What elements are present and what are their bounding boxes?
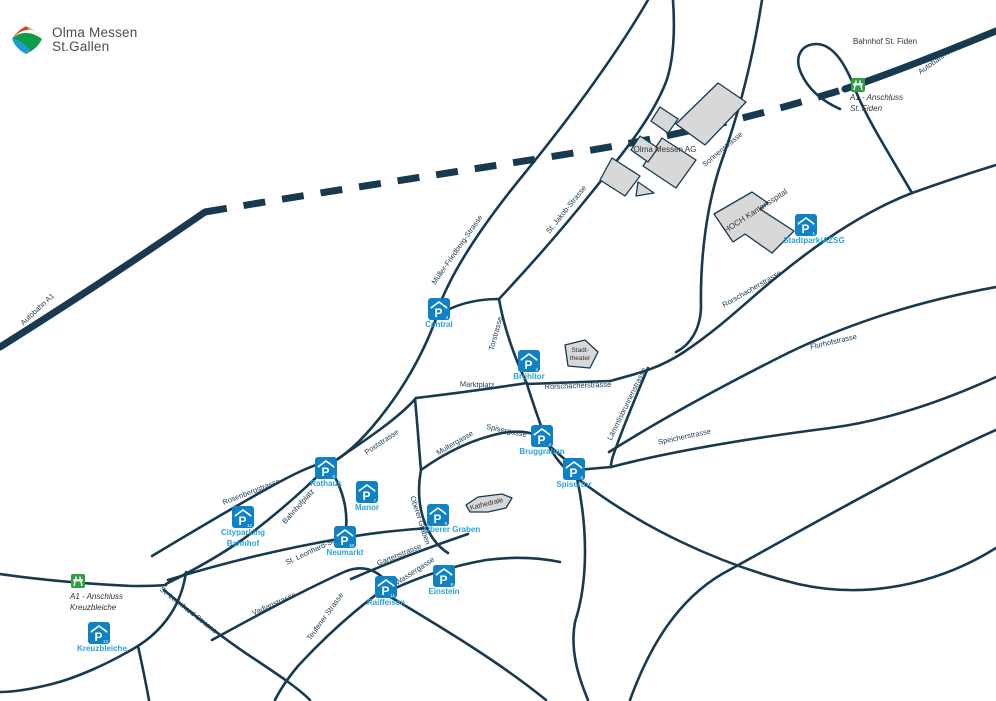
road-network	[0, 0, 996, 700]
parking-marker[interactable]: P12	[232, 506, 254, 528]
parking-marker[interactable]: P4	[531, 425, 553, 447]
parking-p-icon: P	[238, 514, 246, 528]
logo-line-2: St.Gallen	[52, 40, 137, 55]
olma-logo-text: Olma Messen St.Gallen	[52, 26, 137, 55]
road-a1-ramp-st-fiden	[798, 44, 912, 193]
parking-marker[interactable]: P13	[88, 622, 110, 644]
parking-marker[interactable]: P5	[563, 458, 585, 480]
parking-label: Spisertor	[556, 480, 591, 489]
parking-p-icon: P	[362, 489, 370, 503]
road-rorschacher-continue	[912, 165, 996, 193]
parking-label: Einstein	[428, 587, 459, 596]
road-bottom-center	[389, 596, 546, 700]
road-southeast-1	[577, 478, 996, 590]
motorway-exit-label: St. Fiden	[850, 104, 883, 113]
parking-marker[interactable]: P11	[375, 576, 397, 598]
street-label: Flurhofstrasse	[809, 332, 857, 351]
parking-label: Neumarkt	[327, 548, 364, 557]
motorway-exit-label: A1 - Anschluss	[69, 592, 123, 601]
road-southeast-3	[630, 430, 996, 700]
parking-marker[interactable]: P2	[518, 350, 540, 372]
street-label: St. Leonhard-Strasse	[158, 585, 219, 636]
road-vadianstrasse	[212, 568, 385, 640]
street-label: Marktplatz	[460, 379, 495, 389]
parking-label: Kreuzbleiche	[77, 644, 127, 653]
road-kreuzbleiche-stub	[138, 646, 149, 700]
parking-label: Brühltor	[513, 372, 545, 381]
motorway-exit-label: A1 - Anschluss	[849, 93, 903, 102]
parking-p-icon: P	[524, 358, 532, 372]
road-speicherstrasse	[611, 377, 996, 467]
road-autobahn-a1-southwest	[0, 212, 205, 347]
olma-logo: Olma Messen St.Gallen	[10, 24, 137, 56]
motorway-exit-icon	[71, 574, 85, 588]
building-kantonsspital	[714, 192, 794, 253]
parking-label: Rathaus	[310, 479, 342, 488]
road-sonnenstrasse-join	[676, 308, 701, 352]
street-label: Torstrasse	[487, 315, 505, 351]
place-label: Olma Messen AG	[634, 145, 697, 154]
parking-label: Raiffeisen	[367, 598, 405, 607]
parking-label: Cityparking	[221, 528, 265, 537]
olma-logo-icon	[10, 24, 44, 56]
place-label: theater	[570, 355, 591, 362]
street-label: Rorschacherstrasse	[721, 268, 783, 309]
parking-p-icon: P	[439, 573, 447, 587]
parking-label: Oberer Graben	[424, 525, 481, 534]
logo-line-1: Olma Messen	[52, 26, 137, 41]
parking-marker[interactable]: P9	[433, 565, 455, 587]
building-stadttheater	[565, 340, 598, 368]
parking-p-icon: P	[381, 584, 389, 598]
street-label: Teufener Strasse	[305, 591, 346, 642]
parking-p-icon: P	[433, 512, 441, 526]
street-label: St. Jakob-Strasse	[544, 184, 588, 236]
building-olma-hall-lower	[600, 158, 640, 196]
parking-marker[interactable]: P3	[428, 298, 450, 320]
parking-p-icon: P	[434, 306, 442, 320]
parking-label: Bruggraben	[519, 447, 564, 456]
motorway-exit-label: Kreuzbleiche	[70, 603, 117, 612]
street-label: Vadianstrasse	[251, 590, 298, 617]
parking-marker[interactable]: P7	[356, 481, 378, 503]
parking-label: Bahnhof	[227, 539, 260, 548]
parking-marker[interactable]: P6	[315, 457, 337, 479]
parking-label: Stadtpark/AZSG	[783, 236, 844, 245]
place-label: Bahnhof St. Fiden	[853, 37, 917, 46]
building-olma-hall-upper	[651, 107, 678, 133]
building-olma-triangle	[636, 182, 654, 196]
street-label: Rosenbergstrasse	[221, 477, 281, 507]
parking-p-icon: P	[340, 534, 348, 548]
parking-p-icon: P	[94, 630, 102, 644]
road-flurhofstrasse	[609, 287, 996, 452]
parking-p-icon: P	[321, 465, 329, 479]
motorway-exit-icon	[851, 78, 865, 92]
place-label: Stadt-	[571, 347, 588, 354]
street-label: Rorschacherstrasse	[544, 380, 611, 391]
parking-label: Central	[425, 320, 453, 329]
parking-marker[interactable]: P8	[427, 504, 449, 526]
parking-p-icon: P	[569, 466, 577, 480]
street-label: Müller-Friedberg-Strasse	[429, 213, 484, 286]
parking-label: Manor	[355, 503, 379, 512]
road-southeast-2	[573, 478, 588, 700]
city-map: Autobahn A1Autobahn A1SonnenstrasseSt. J…	[0, 0, 996, 701]
road-mueller-friedberg	[437, 0, 648, 312]
parking-p-icon: P	[801, 222, 809, 236]
parking-marker[interactable]: P10	[334, 526, 356, 548]
parking-marker[interactable]: P1	[795, 214, 817, 236]
parking-p-icon: P	[537, 433, 545, 447]
street-label: Gartenstrasse	[376, 542, 423, 568]
street-label: Speicherstrasse	[657, 427, 711, 447]
